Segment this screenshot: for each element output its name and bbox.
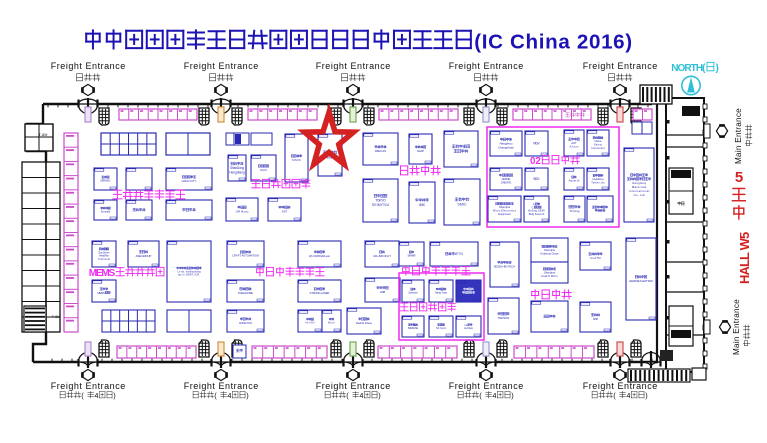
- svg-text:4: 4: [492, 391, 496, 400]
- svg-text:Freight Entrance: Freight Entrance: [51, 61, 126, 71]
- svg-text:4: 4: [359, 391, 363, 400]
- svg-text:HONG TUO: HONG TUO: [239, 321, 253, 325]
- svg-text:Radial Wave: Radial Wave: [356, 321, 373, 325]
- svg-text:Wyr RZR ERLson: Wyr RZR ERLson: [309, 254, 331, 258]
- svg-text:ASE GROUP: ASE GROUP: [136, 254, 152, 258]
- svg-text:NCAP: NCAP: [417, 149, 424, 153]
- svg-text:AST: AST: [282, 210, 288, 214]
- svg-text:SMIC: SMIC: [457, 203, 467, 207]
- svg-text:Hang Yuan: Hang Yuan: [435, 291, 448, 295]
- svg-text:02: 02: [530, 156, 541, 167]
- svg-text:LG Chem: LG Chem: [464, 327, 473, 330]
- svg-text:SEIMITSU: SEIMITSU: [372, 203, 390, 207]
- svg-text:Changchuan: Changchuan: [498, 145, 514, 149]
- svg-text:SK hynix: SK hynix: [436, 327, 447, 330]
- svg-text:SiYang: SiYang: [570, 209, 580, 213]
- svg-text:Freight Entrance: Freight Entrance: [316, 381, 391, 391]
- svg-text:ips In. ERAT. ICR.: ips In. ERAT. ICR.: [178, 274, 200, 277]
- svg-text:Acmer.Ut: Acmer.Ut: [569, 179, 580, 183]
- svg-text:4: 4: [626, 391, 630, 400]
- svg-text:SAIC: SAIC: [260, 168, 267, 172]
- svg-text:Sprasue: Sprasue: [408, 292, 418, 295]
- svg-text:Freight Entrance: Freight Entrance: [51, 381, 126, 391]
- svg-text:SAMSUNG: SAMSUNG: [408, 327, 419, 330]
- svg-text:HuaLN Micro: HuaLN Micro: [541, 274, 558, 278]
- svg-text:Technical: Technical: [98, 258, 110, 261]
- svg-text:UAB: UAB: [380, 290, 386, 294]
- svg-text:Hengdiang: Hengdiang: [229, 170, 245, 174]
- svg-text:VeriSil: VeriSil: [305, 322, 315, 325]
- svg-text:FoxITM: FoxITM: [590, 256, 601, 260]
- svg-text:Senodia: Senodia: [101, 211, 111, 214]
- svg-text:CREATE: CREATE: [501, 181, 512, 185]
- svg-text:IMECAS: IMECAS: [375, 149, 386, 153]
- svg-text:WTN: WTN: [455, 252, 464, 256]
- svg-text:): ): [246, 391, 248, 400]
- svg-text:(IC China 2016): (IC China 2016): [474, 31, 632, 54]
- svg-text:Equipment: Equipment: [498, 212, 511, 216]
- svg-text:): ): [378, 391, 380, 400]
- svg-text:Main Entrance: Main Entrance: [734, 108, 743, 164]
- svg-text:Tester,Inc: Tester,Inc: [591, 180, 605, 184]
- svg-text:HERMES-EPITEK: HERMES-EPITEK: [629, 279, 653, 283]
- svg-text:NANO CITY: NANO CITY: [182, 179, 197, 183]
- svg-text:CRAFT AUTOMATION: CRAFT AUTOMATION: [232, 254, 259, 258]
- svg-text:): ): [113, 391, 115, 400]
- svg-text:Main Entrance: Main Entrance: [732, 299, 741, 355]
- svg-text:Altrus: Altrus: [569, 145, 579, 149]
- svg-text:XMC: XMC: [419, 203, 426, 207]
- svg-text:MEMS: MEMS: [98, 291, 106, 295]
- svg-text:): ): [645, 391, 647, 400]
- svg-text:Freight Entrance: Freight Entrance: [184, 381, 259, 391]
- svg-text:Co., Ltd: Co., Ltd: [634, 193, 645, 197]
- svg-text:Huahong Grace: Huahong Grace: [540, 251, 559, 255]
- svg-text:TOKYO: TOKYO: [375, 199, 386, 203]
- svg-text:Freight Entrance: Freight Entrance: [449, 381, 524, 391]
- svg-text:HALL W5: HALL W5: [737, 232, 752, 284]
- svg-text:Instrument: Instrument: [591, 146, 605, 150]
- svg-text:T-8M: T-8M: [52, 315, 60, 319]
- svg-text:Freight Entrance: Freight Entrance: [184, 61, 259, 71]
- svg-text:4: 4: [94, 391, 98, 400]
- svg-text:OR 4Lero: OR 4Lero: [236, 210, 249, 214]
- svg-text:NORTH(: NORTH(: [671, 63, 706, 74]
- svg-text:): ): [716, 63, 719, 74]
- svg-text:Freight Entrance: Freight Entrance: [449, 61, 524, 71]
- svg-text:Freight Entrance: Freight Entrance: [316, 61, 391, 71]
- svg-text:GR+BR DIGIT: GR+BR DIGIT: [373, 254, 391, 258]
- svg-text:T-8M: T-8M: [39, 133, 48, 137]
- svg-text:SIMIC: SIMIC: [292, 158, 301, 162]
- svg-text:MEMSIC: MEMSIC: [100, 179, 110, 183]
- svg-text:5: 5: [735, 169, 743, 186]
- svg-text:Brite: Brite: [328, 322, 335, 325]
- svg-text:): ): [511, 391, 513, 400]
- svg-text:Freight Entrance: Freight Entrance: [583, 61, 658, 71]
- svg-text:SE300 HB+TECH: SE300 HB+TECH: [494, 264, 516, 268]
- svg-text:4: 4: [227, 391, 231, 400]
- svg-text:MEMS: MEMS: [89, 268, 116, 279]
- svg-text:STRONG LASER: STRONG LASER: [310, 291, 330, 295]
- svg-text:Bldg.Seventh: Bldg.Seventh: [529, 213, 545, 216]
- svg-text:NXP: NXP: [593, 317, 599, 321]
- svg-text:RGV: RGV: [533, 142, 540, 146]
- svg-text:TEKSUN: TEKSUN: [498, 316, 509, 320]
- svg-text:BSG: BSG: [534, 177, 540, 181]
- svg-text:FHAGOONE: FHAGOONE: [238, 291, 253, 295]
- svg-text:SW+BR: SW+BR: [408, 254, 416, 258]
